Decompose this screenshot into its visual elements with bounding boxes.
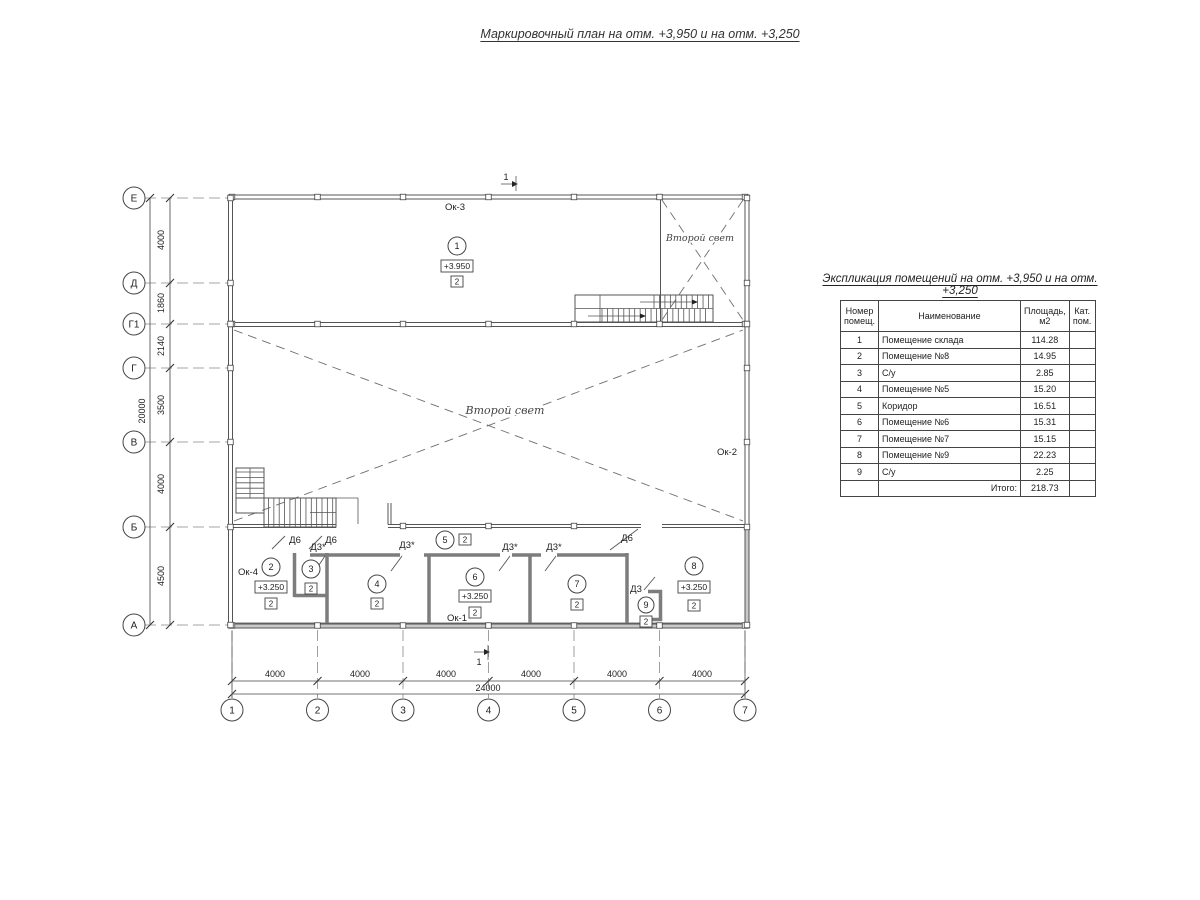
window-tag-ok2: Ок-2 — [717, 447, 737, 458]
column-marker-icon — [657, 623, 663, 629]
dim-total-label: 24000 — [475, 683, 500, 693]
void-cross-marks — [234, 200, 743, 521]
door-tag-d3s: Д3* — [546, 542, 562, 553]
room-area-cell: 15.31 — [1020, 414, 1069, 431]
room-number-cell: 5 — [841, 398, 879, 415]
column-marker-icon — [315, 321, 321, 327]
column-marker-icon — [486, 194, 492, 200]
room-number-cell: 9 — [841, 464, 879, 481]
room-category: 2 — [463, 536, 468, 545]
dim-label: 1860 — [156, 293, 166, 313]
dim-label: 4000 — [692, 669, 712, 679]
table-row: 4Помещение №515.20 — [841, 381, 1096, 398]
door-tag-d6: Д6 — [325, 535, 337, 546]
column-marker-icon — [400, 321, 406, 327]
room-category: 2 — [575, 601, 580, 610]
column-marker-icon — [744, 195, 750, 201]
axis-col-label: 4 — [486, 706, 492, 717]
column-marker-icon — [400, 523, 406, 529]
axis-col-label: 2 — [315, 706, 321, 717]
room-number-cell: 8 — [841, 447, 879, 464]
column-marker-icon — [744, 321, 750, 327]
total-area-cell: 218.73 — [1020, 480, 1069, 497]
room-schedule-table: Номер помещ. Наименование Площадь, м2 Ка… — [840, 300, 1096, 497]
room-area-cell: 15.15 — [1020, 431, 1069, 448]
room-number: 2 — [268, 562, 273, 572]
room-area-cell: 2.25 — [1020, 464, 1069, 481]
room-category: 2 — [375, 600, 380, 609]
dim-total-label: 20000 — [137, 398, 147, 423]
header-room-area: Площадь, м2 — [1020, 301, 1069, 332]
room-number: 8 — [691, 561, 696, 571]
dim-label: 4000 — [265, 669, 285, 679]
total-label-cell: Итого: — [878, 480, 1020, 497]
column-marker-icon — [744, 365, 750, 371]
dim-label: 4000 — [350, 669, 370, 679]
door-tag-d6: Д6 — [289, 535, 301, 546]
dim-label: 4000 — [607, 669, 627, 679]
schedule-header-row: Номер помещ. Наименование Площадь, м2 Ка… — [841, 301, 1096, 332]
section-mark-label: 1 — [476, 657, 481, 667]
second-light-note: Второй свет — [665, 233, 734, 244]
axis-row-label: Е — [131, 194, 138, 205]
column-marker-icon — [486, 623, 492, 629]
room-category: 2 — [455, 278, 460, 287]
axis-row-label: Д — [131, 279, 138, 290]
door-tag-d3: Д3 — [630, 584, 642, 595]
upper-staircase — [575, 295, 713, 322]
column-marker-icon — [571, 623, 577, 629]
dim-label: 4000 — [436, 669, 456, 679]
room-name-cell: С/у — [878, 365, 1020, 382]
section-mark-bottom: 1 — [474, 645, 490, 667]
column-marker-icon — [657, 321, 663, 327]
room-name-cell: Коридор — [878, 398, 1020, 415]
second-light-note: Второй свет — [465, 404, 545, 417]
door-tag-d3s: Д3* — [310, 542, 326, 553]
axis-col-label: 7 — [742, 706, 748, 717]
column-marker-icon — [744, 280, 750, 286]
axis-col-label: 1 — [229, 706, 235, 717]
schedule-total-row: Итого: 218.73 — [841, 480, 1096, 497]
axis-row-label: Г — [131, 364, 137, 375]
room-name-cell: Помещение №8 — [878, 348, 1020, 365]
header-room-number: Номер помещ. — [841, 301, 879, 332]
room-number: 1 — [454, 241, 459, 251]
column-marker-icon — [315, 194, 321, 200]
room-elevation: +3.250 — [258, 582, 285, 592]
room-name-cell: Помещение №7 — [878, 431, 1020, 448]
room-area-cell: 15.20 — [1020, 381, 1069, 398]
room-name-cell: Помещение №9 — [878, 447, 1020, 464]
room-cat-cell — [1069, 365, 1095, 382]
column-marker-icon — [228, 439, 234, 445]
column-marker-icon — [657, 194, 663, 200]
dim-label: 3500 — [156, 395, 166, 415]
room-elevation: +3.950 — [444, 261, 471, 271]
dim-label: 4500 — [156, 566, 166, 586]
header-room-category: Кат. пом. — [1069, 301, 1095, 332]
column-marker-icon — [571, 194, 577, 200]
table-row: 3С/у2.85 — [841, 365, 1096, 382]
column-marker-icon — [744, 439, 750, 445]
col-axis-bubbles: 1 2 3 4 5 6 7 — [221, 699, 756, 721]
axis-row-label: Г1 — [129, 320, 140, 331]
total-empty-cell — [841, 480, 879, 497]
lower-staircase — [236, 468, 358, 527]
column-marker-icon — [228, 280, 234, 286]
table-row: 6Помещение №615.31 — [841, 414, 1096, 431]
door-tag-d3s: Д3* — [502, 542, 518, 553]
room-elevation: +3.250 — [462, 591, 489, 601]
dim-label: 4000 — [156, 474, 166, 494]
room-cat-cell — [1069, 398, 1095, 415]
room-area-cell: 14.95 — [1020, 348, 1069, 365]
second-light-notes: Второй свет Второй свет — [465, 233, 735, 417]
window-tag-ok3: Ок-3 — [445, 202, 465, 213]
room-category: 2 — [644, 618, 649, 627]
column-marker-icon — [486, 321, 492, 327]
table-row: 5Коридор16.51 — [841, 398, 1096, 415]
room-cat-cell — [1069, 431, 1095, 448]
room-area-cell: 22.23 — [1020, 447, 1069, 464]
room-elevation: +3.250 — [681, 582, 708, 592]
room-number: 3 — [308, 564, 313, 574]
room-number: 9 — [643, 600, 648, 610]
section-mark-top: 1 — [501, 172, 518, 191]
room-category: 2 — [309, 585, 314, 594]
room-category: 2 — [269, 600, 274, 609]
column-marker-icon — [571, 321, 577, 327]
room-number: 6 — [472, 572, 477, 582]
room-name-cell: С/у — [878, 464, 1020, 481]
room-cat-cell — [1069, 332, 1095, 349]
room-cat-cell — [1069, 447, 1095, 464]
room-number: 5 — [442, 535, 447, 545]
column-marker-icon — [400, 623, 406, 629]
section-mark-label: 1 — [503, 172, 508, 182]
column-marker-icon — [228, 365, 234, 371]
column-marker-icon — [228, 321, 234, 327]
total-cat-cell — [1069, 480, 1095, 497]
room-cat-cell — [1069, 381, 1095, 398]
room-name-cell: Помещение №6 — [878, 414, 1020, 431]
door-leaves — [315, 556, 655, 590]
column-marker-icon — [744, 524, 750, 530]
header-room-name: Наименование — [878, 301, 1020, 332]
room-area-cell: 114.28 — [1020, 332, 1069, 349]
interior-walls — [233, 199, 746, 528]
axis-col-label: 5 — [571, 706, 577, 717]
room-name-cell: Помещение склада — [878, 332, 1020, 349]
table-row: 8Помещение №922.23 — [841, 447, 1096, 464]
room-number-cell: 6 — [841, 414, 879, 431]
column-marker-icon — [228, 195, 234, 201]
column-marker-icon — [228, 622, 234, 628]
room-number-cell: 2 — [841, 348, 879, 365]
room-number-cell: 4 — [841, 381, 879, 398]
room-number-cell: 1 — [841, 332, 879, 349]
axis-col-label: 3 — [400, 706, 406, 717]
room-cat-cell — [1069, 348, 1095, 365]
column-marker-icon — [315, 623, 321, 629]
room-area-cell: 16.51 — [1020, 398, 1069, 415]
column-marker-icon — [571, 523, 577, 529]
room-number: 4 — [374, 579, 379, 589]
room-category: 2 — [473, 609, 478, 618]
room-number-cell: 3 — [841, 365, 879, 382]
room-area-cell: 2.85 — [1020, 365, 1069, 382]
room-number-cell: 7 — [841, 431, 879, 448]
window-tag-ok4: Ок-4 — [238, 567, 258, 578]
room-cat-cell — [1069, 414, 1095, 431]
dim-label: 4000 — [521, 669, 541, 679]
column-marker-icon — [228, 524, 234, 530]
table-row: 2Помещение №814.95 — [841, 348, 1096, 365]
table-row: 9С/у2.25 — [841, 464, 1096, 481]
column-marker-icon — [486, 523, 492, 529]
door-tag-d3s: Д3* — [399, 540, 415, 551]
column-marker-icon — [744, 622, 750, 628]
axis-col-label: 6 — [657, 706, 663, 717]
room-number: 7 — [574, 579, 579, 589]
column-marker-icon — [400, 194, 406, 200]
door-tag-d6: Д6 — [621, 533, 633, 544]
dim-label: 4000 — [156, 230, 166, 250]
room-cat-cell — [1069, 464, 1095, 481]
table-row: 1Помещение склада114.28 — [841, 332, 1096, 349]
schedule-title: Экспликация помещений на отм. +3,950 и н… — [818, 273, 1102, 297]
axis-row-label: А — [131, 621, 138, 632]
axis-row-label: Б — [131, 523, 138, 534]
axis-row-label: В — [131, 438, 138, 449]
room-category: 2 — [692, 602, 697, 611]
room-name-cell: Помещение №5 — [878, 381, 1020, 398]
dim-label: 2140 — [156, 336, 166, 356]
table-row: 7Помещение №715.15 — [841, 431, 1096, 448]
window-tag-ok1: Ок-1 — [447, 613, 467, 624]
